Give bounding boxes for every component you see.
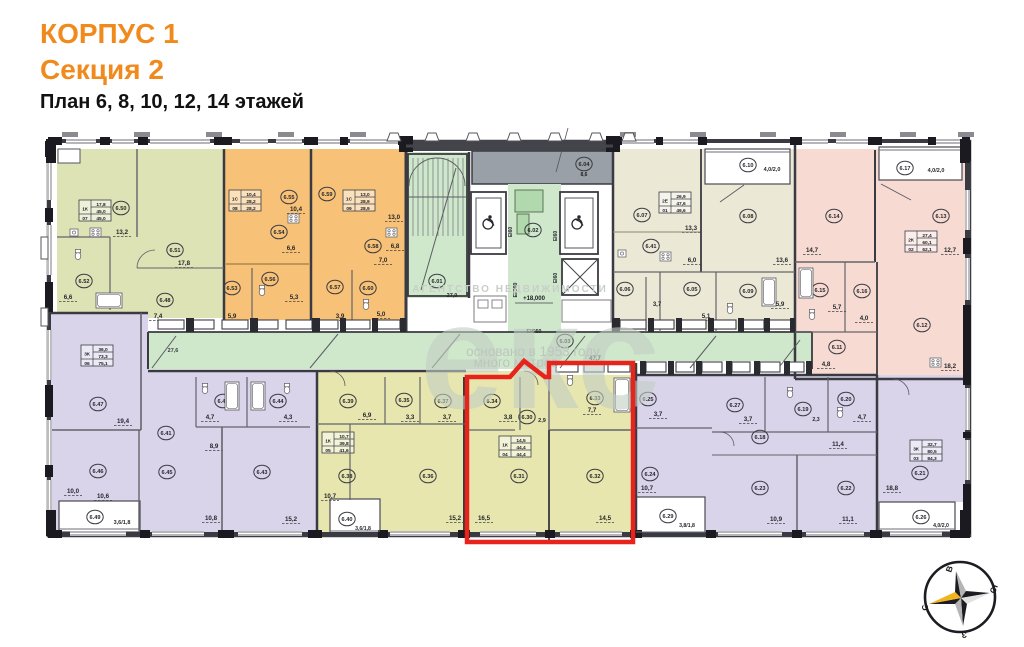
svg-text:13,2: 13,2	[116, 229, 129, 236]
svg-text:4,7: 4,7	[858, 414, 867, 421]
svg-text:09: 09	[346, 206, 352, 212]
svg-text:17,8: 17,8	[178, 260, 191, 267]
svg-text:6.11: 6.11	[832, 345, 843, 351]
svg-text:6.44: 6.44	[273, 399, 285, 405]
svg-text:14,5: 14,5	[599, 515, 612, 522]
svg-text:КОРПУС 1: КОРПУС 1	[40, 18, 179, 49]
svg-text:04: 04	[502, 452, 508, 458]
svg-text:10,9: 10,9	[770, 516, 783, 523]
svg-text:6.02: 6.02	[528, 228, 539, 234]
svg-text:45,0: 45,0	[96, 216, 106, 222]
svg-text:6.60: 6.60	[363, 286, 374, 292]
svg-text:6.31: 6.31	[514, 474, 525, 480]
svg-text:12,7: 12,7	[944, 247, 957, 254]
svg-text:6.09: 6.09	[743, 289, 754, 295]
svg-text:02: 02	[908, 247, 914, 253]
svg-text:6.45: 6.45	[162, 470, 173, 476]
svg-text:15,2: 15,2	[449, 515, 462, 522]
svg-text:13,6: 13,6	[776, 257, 789, 264]
svg-text:10,7: 10,7	[324, 493, 337, 500]
svg-text:15,2: 15,2	[285, 516, 298, 523]
svg-text:6.32: 6.32	[590, 474, 601, 480]
svg-text:17,8: 17,8	[96, 202, 106, 208]
svg-text:28,9: 28,9	[360, 199, 370, 205]
svg-text:EI60: EI60	[508, 227, 514, 238]
svg-text:6.07: 6.07	[637, 213, 648, 219]
svg-text:6,9: 6,9	[363, 412, 372, 419]
svg-text:10,0: 10,0	[67, 488, 80, 495]
svg-text:6.49: 6.49	[90, 515, 101, 521]
svg-text:06: 06	[84, 361, 90, 367]
svg-text:18,8: 18,8	[886, 485, 899, 492]
svg-text:6.04: 6.04	[579, 162, 591, 168]
svg-text:6.17: 6.17	[900, 166, 911, 172]
svg-text:28,9: 28,9	[360, 206, 370, 212]
svg-text:5,9: 5,9	[228, 313, 237, 320]
svg-text:08: 08	[232, 206, 238, 212]
svg-text:6.40: 6.40	[342, 517, 353, 523]
svg-text:32,7: 32,7	[927, 442, 937, 448]
svg-text:7,4: 7,4	[154, 313, 163, 320]
svg-text:4,7: 4,7	[206, 414, 215, 421]
svg-text:6.56: 6.56	[265, 277, 276, 283]
svg-text:5,0: 5,0	[377, 311, 386, 318]
svg-text:75,1: 75,1	[98, 361, 108, 367]
svg-text:01: 01	[662, 208, 668, 214]
svg-text:6,8: 6,8	[391, 243, 400, 250]
svg-text:10,6: 10,6	[97, 493, 110, 500]
svg-text:6.10: 6.10	[743, 163, 754, 169]
svg-text:6.53: 6.53	[227, 286, 238, 292]
svg-text:44,4: 44,4	[516, 445, 526, 451]
svg-text:6.20: 6.20	[841, 397, 852, 403]
svg-text:18,2: 18,2	[944, 363, 957, 370]
svg-text:6.15: 6.15	[815, 288, 826, 294]
svg-text:6.24: 6.24	[645, 472, 657, 478]
svg-text:6.58: 6.58	[368, 244, 379, 250]
svg-text:6,6: 6,6	[287, 245, 296, 252]
svg-text:1С: 1С	[232, 197, 239, 203]
svg-text:6.43: 6.43	[257, 470, 268, 476]
svg-text:62,1: 62,1	[922, 247, 932, 253]
svg-text:6,0: 6,0	[688, 257, 697, 264]
svg-text:5,3: 5,3	[290, 294, 299, 301]
svg-text:6.54: 6.54	[274, 230, 286, 236]
svg-text:84,3: 84,3	[927, 456, 937, 462]
svg-text:49,6: 49,6	[676, 208, 686, 214]
svg-text:10,8: 10,8	[205, 515, 218, 522]
svg-text:3,7: 3,7	[744, 416, 753, 423]
svg-text:13,3: 13,3	[685, 225, 698, 232]
svg-text:11,4: 11,4	[832, 441, 844, 448]
svg-text:73,3: 73,3	[98, 354, 108, 360]
svg-text:10,7: 10,7	[641, 485, 654, 492]
svg-text:36,0: 36,0	[98, 347, 108, 353]
svg-text:АГЕНТСТВО НЕДВИЖИМОСТИ: АГЕНТСТВО НЕДВИЖИМОСТИ	[412, 284, 608, 295]
svg-text:2,3: 2,3	[812, 417, 819, 423]
svg-text:3,6/1,8: 3,6/1,8	[114, 520, 131, 526]
svg-text:1К: 1К	[82, 207, 88, 213]
svg-text:6.39: 6.39	[343, 399, 354, 405]
svg-text:6.14: 6.14	[829, 214, 841, 220]
svg-text:6.55: 6.55	[284, 195, 295, 201]
svg-text:1К: 1К	[325, 439, 331, 445]
svg-text:10,4: 10,4	[246, 192, 256, 198]
svg-text:З: З	[961, 630, 967, 640]
svg-text:2К: 2К	[908, 238, 914, 244]
svg-text:6.38: 6.38	[342, 474, 353, 480]
svg-text:5,7: 5,7	[833, 304, 842, 311]
svg-text:28,2: 28,2	[246, 206, 256, 212]
svg-text:6.13: 6.13	[936, 214, 947, 220]
svg-text:6.26: 6.26	[916, 515, 927, 521]
svg-text:6.29: 6.29	[663, 514, 674, 520]
svg-text:27,4: 27,4	[922, 233, 932, 239]
svg-text:7,0: 7,0	[379, 257, 388, 264]
svg-text:План 6, 8, 10, 12, 14 этажей: План 6, 8, 10, 12, 14 этажей	[40, 91, 304, 113]
svg-text:8,6: 8,6	[581, 172, 588, 178]
svg-text:4,3: 4,3	[284, 414, 293, 421]
svg-text:6.57: 6.57	[330, 285, 341, 291]
svg-text:4,0/2,0: 4,0/2,0	[933, 523, 949, 529]
svg-text:6.05: 6.05	[687, 287, 698, 293]
svg-text:6.19: 6.19	[798, 407, 809, 413]
svg-text:6.08: 6.08	[743, 214, 754, 220]
svg-text:41,6: 41,6	[339, 448, 349, 454]
svg-text:6.51: 6.51	[170, 248, 181, 254]
svg-text:47,6: 47,6	[676, 201, 686, 207]
svg-text:8,9: 8,9	[210, 443, 219, 450]
svg-text:27,6: 27,6	[168, 348, 179, 354]
svg-text:6,6: 6,6	[64, 294, 73, 301]
svg-text:11,1: 11,1	[842, 516, 854, 523]
svg-text:4,0: 4,0	[860, 315, 869, 322]
svg-text:16,5: 16,5	[478, 515, 491, 522]
svg-text:45,0: 45,0	[96, 209, 106, 215]
svg-text:44,4: 44,4	[516, 452, 526, 458]
svg-text:6.12: 6.12	[917, 323, 928, 329]
svg-text:6.50: 6.50	[116, 206, 127, 212]
svg-text:6.27: 6.27	[730, 403, 741, 409]
svg-text:80,5: 80,5	[927, 449, 937, 455]
svg-text:2Е: 2Е	[662, 199, 669, 205]
svg-text:6.48: 6.48	[160, 298, 171, 304]
svg-text:10,7: 10,7	[339, 434, 349, 440]
svg-text:6.23: 6.23	[755, 486, 766, 492]
svg-text:4,0/2,0: 4,0/2,0	[928, 168, 945, 174]
svg-text:EI60: EI60	[553, 231, 559, 242]
svg-text:3К: 3К	[913, 447, 919, 453]
svg-text:3,8/1,8: 3,8/1,8	[679, 523, 695, 529]
svg-text:1С: 1С	[346, 197, 353, 203]
svg-text:6.52: 6.52	[79, 279, 90, 285]
svg-text:28,2: 28,2	[246, 199, 256, 205]
svg-text:6.22: 6.22	[841, 486, 852, 492]
svg-text:4,0/2,0: 4,0/2,0	[764, 167, 781, 173]
svg-text:6.41: 6.41	[161, 431, 172, 437]
svg-text:6.46: 6.46	[93, 469, 104, 475]
svg-text:39,8: 39,8	[339, 441, 349, 447]
svg-text:03: 03	[913, 456, 919, 462]
svg-text:6.36: 6.36	[423, 474, 434, 480]
svg-text:1К: 1К	[502, 443, 508, 449]
svg-text:4,8: 4,8	[822, 361, 831, 368]
svg-text:5,9: 5,9	[776, 301, 785, 308]
svg-text:13,0: 13,0	[360, 192, 370, 198]
svg-text:13,0: 13,0	[388, 214, 401, 221]
svg-text:3,3: 3,3	[406, 414, 415, 421]
svg-text:6.41: 6.41	[646, 244, 657, 250]
svg-text:6.18: 6.18	[755, 435, 766, 441]
svg-text:6.59: 6.59	[322, 192, 333, 198]
svg-text:3К: 3К	[84, 352, 90, 358]
svg-text:60,1: 60,1	[922, 240, 932, 246]
svg-text:6.16: 6.16	[857, 289, 868, 295]
svg-text:26,9: 26,9	[676, 194, 686, 200]
svg-text:Секция 2: Секция 2	[40, 54, 164, 85]
svg-text:10,4: 10,4	[290, 206, 303, 213]
svg-text:6.21: 6.21	[915, 471, 926, 477]
svg-text:19,4: 19,4	[117, 418, 130, 425]
svg-text:05: 05	[325, 448, 331, 454]
svg-text:07: 07	[82, 216, 88, 222]
svg-text:14,7: 14,7	[806, 247, 819, 254]
svg-text:6.35: 6.35	[399, 398, 410, 404]
svg-text:6.47: 6.47	[93, 402, 104, 408]
